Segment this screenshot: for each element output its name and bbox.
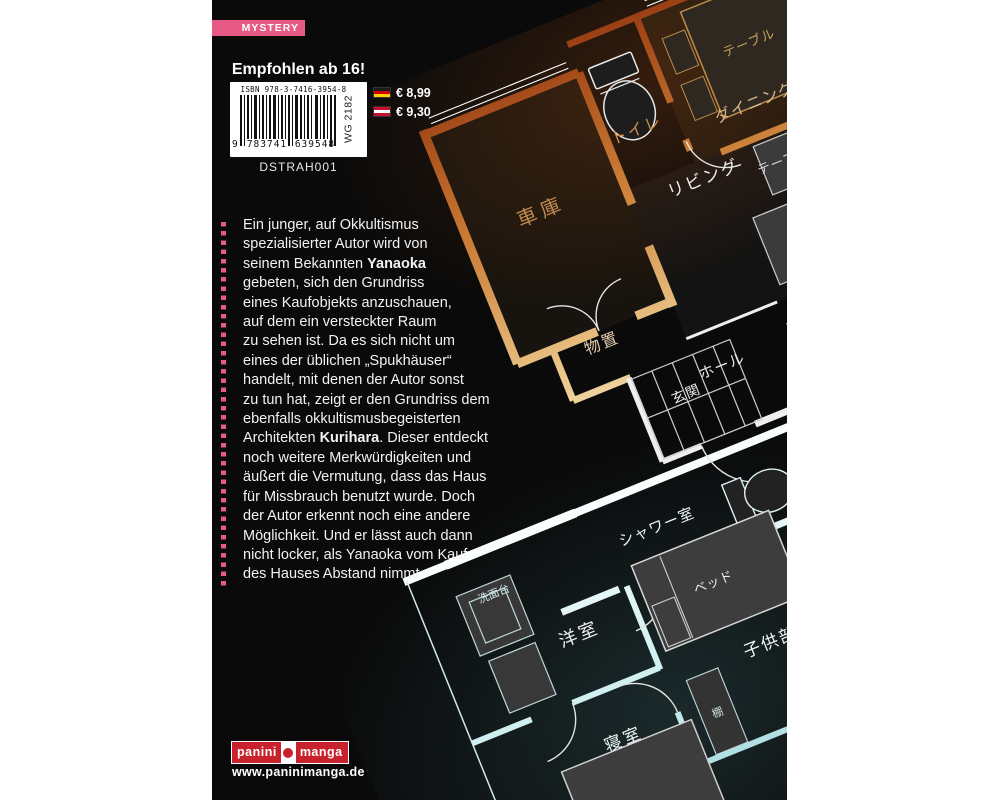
synopsis-line: zu tun hat, zeigt er den Grundriss dem xyxy=(243,391,543,410)
publisher-logo: panini manga xyxy=(232,742,348,763)
barcode-digit-group1: 783741 xyxy=(245,139,289,150)
page-background: トイレテーブルダイニングリビングテーブル車庫物置玄関ホールシャワー室洗面台洋室ベ… xyxy=(0,0,1000,800)
barcode-bar xyxy=(295,95,298,139)
dotted-accent-line xyxy=(221,222,226,590)
isbn-text: ISBN 978-3-7416-3954-8 xyxy=(230,85,357,94)
austria-flag-icon xyxy=(373,106,391,117)
synopsis-line: nicht locker, als Yanaoka vom Kauf xyxy=(243,546,543,565)
room-label-entrance: 玄関 xyxy=(668,379,703,409)
synopsis-line: handelt, mit denen der Autor sonst xyxy=(243,371,543,390)
age-rating: Empfohlen ab 16! xyxy=(230,61,367,79)
germany-flag-icon xyxy=(373,87,391,98)
barcode-bar xyxy=(273,95,276,139)
barcode-bar xyxy=(278,95,279,139)
synopsis-line: gebeten, sich den Grundriss xyxy=(243,274,543,293)
room-label-dining-table: テーブル xyxy=(719,23,777,61)
barcode-bar xyxy=(323,95,325,139)
room-label-western-room: 洋室 xyxy=(555,614,604,654)
barcode-digit-lead: 9 xyxy=(232,139,238,150)
barcode-bar xyxy=(281,95,283,139)
synopsis-line: Möglichkeit. Und er lässt auch dann xyxy=(243,527,543,546)
barcode-digits: 9 783741 639548 xyxy=(240,139,340,151)
synopsis-line: der Autor erkennt noch eine andere xyxy=(243,507,543,526)
synopsis-line: ebenfalls okkultismusbegeisterten xyxy=(243,410,543,429)
barcode-bar xyxy=(247,95,249,139)
price-value: € 9,30 xyxy=(396,105,431,119)
barcode-bar xyxy=(259,95,260,139)
barcode-digit-group2: 639548 xyxy=(293,139,337,150)
room-label-dining-room: ダイニング xyxy=(710,74,787,128)
barcode-bar xyxy=(269,95,271,139)
synopsis-line: des Hauses Abstand nimmt. xyxy=(243,565,543,584)
room-label-shelf: 棚 xyxy=(709,703,725,722)
synopsis-line: eines der üblichen „Spukhäuser“ xyxy=(243,352,543,371)
room-label-toilet-room: トイレ xyxy=(606,107,665,149)
barcode-bar xyxy=(304,95,305,139)
room-label-bed: ベッド xyxy=(690,565,736,598)
genre-badge: MYSTERY xyxy=(212,20,305,36)
room-label-bedroom: 寝室 xyxy=(600,718,646,756)
barcode-bar xyxy=(315,95,318,139)
synopsis-text: Ein junger, auf Okkultismusspezialisiert… xyxy=(243,216,543,585)
synopsis-line: Architekten Kurihara. Dieser entdeckt xyxy=(243,429,543,448)
synopsis-line: zu sehen ist. Da es sich nicht um xyxy=(243,332,543,351)
barcode-bar xyxy=(307,95,309,139)
barcode-bar xyxy=(327,95,328,139)
barcode-bar xyxy=(311,95,312,139)
synopsis-line: äußert die Vermutung, dass das Haus xyxy=(243,468,543,487)
barcode-panel: ISBN 978-3-7416-3954-8 9 783741 639548 W… xyxy=(230,82,367,157)
logo-manga-text: manga xyxy=(296,742,348,763)
room-label-shower-room: シャワー室 xyxy=(615,502,697,551)
barcode-bar xyxy=(262,95,264,139)
synopsis-line: spezialisierter Autor wird von xyxy=(243,235,543,254)
product-code: DSTRAH001 xyxy=(230,160,367,174)
room-label-kids-room: 子供部屋 xyxy=(739,611,787,663)
logo-red-circle-icon xyxy=(283,748,293,758)
room-label-living-room: リビング xyxy=(663,151,743,203)
synopsis-line: für Missbrauch benutzt wurde. Doch xyxy=(243,488,543,507)
book-back-cover: トイレテーブルダイニングリビングテーブル車庫物置玄関ホールシャワー室洗面台洋室ベ… xyxy=(212,0,787,800)
barcode-bar xyxy=(266,95,267,139)
synopsis-line: seinem Bekannten Yanaoka xyxy=(243,255,543,274)
synopsis-line: eines Kaufobjekts anzuschauen, xyxy=(243,294,543,313)
barcode-bar xyxy=(300,95,302,139)
price-value: € 8,99 xyxy=(396,86,431,100)
price-row-austria: € 9,30 xyxy=(373,105,431,118)
barcode-bar xyxy=(285,95,286,139)
genre-badge-label: MYSTERY xyxy=(242,22,299,34)
room-label-hall: ホール xyxy=(696,347,748,384)
room-label-storage: 物置 xyxy=(580,324,622,360)
barcode-bar xyxy=(251,95,252,139)
publisher-url: www.paninimanga.de xyxy=(232,765,365,779)
price-row-germany: € 8,99 xyxy=(373,86,431,99)
synopsis-line: noch weitere Merkwürdigkeiten und xyxy=(243,449,543,468)
synopsis-line: auf dem ein versteckter Raum xyxy=(243,313,543,332)
price-list: € 8,99€ 9,30 xyxy=(373,86,431,124)
wg-code: WG 2182 xyxy=(343,82,357,157)
logo-dot-box xyxy=(281,742,296,763)
room-label-living-table: テーブル xyxy=(754,140,787,178)
barcode-bar xyxy=(254,95,257,139)
logo-panini-text: panini xyxy=(232,742,281,763)
synopsis-line: Ein junger, auf Okkultismus xyxy=(243,216,543,235)
barcode-bar xyxy=(320,95,321,139)
